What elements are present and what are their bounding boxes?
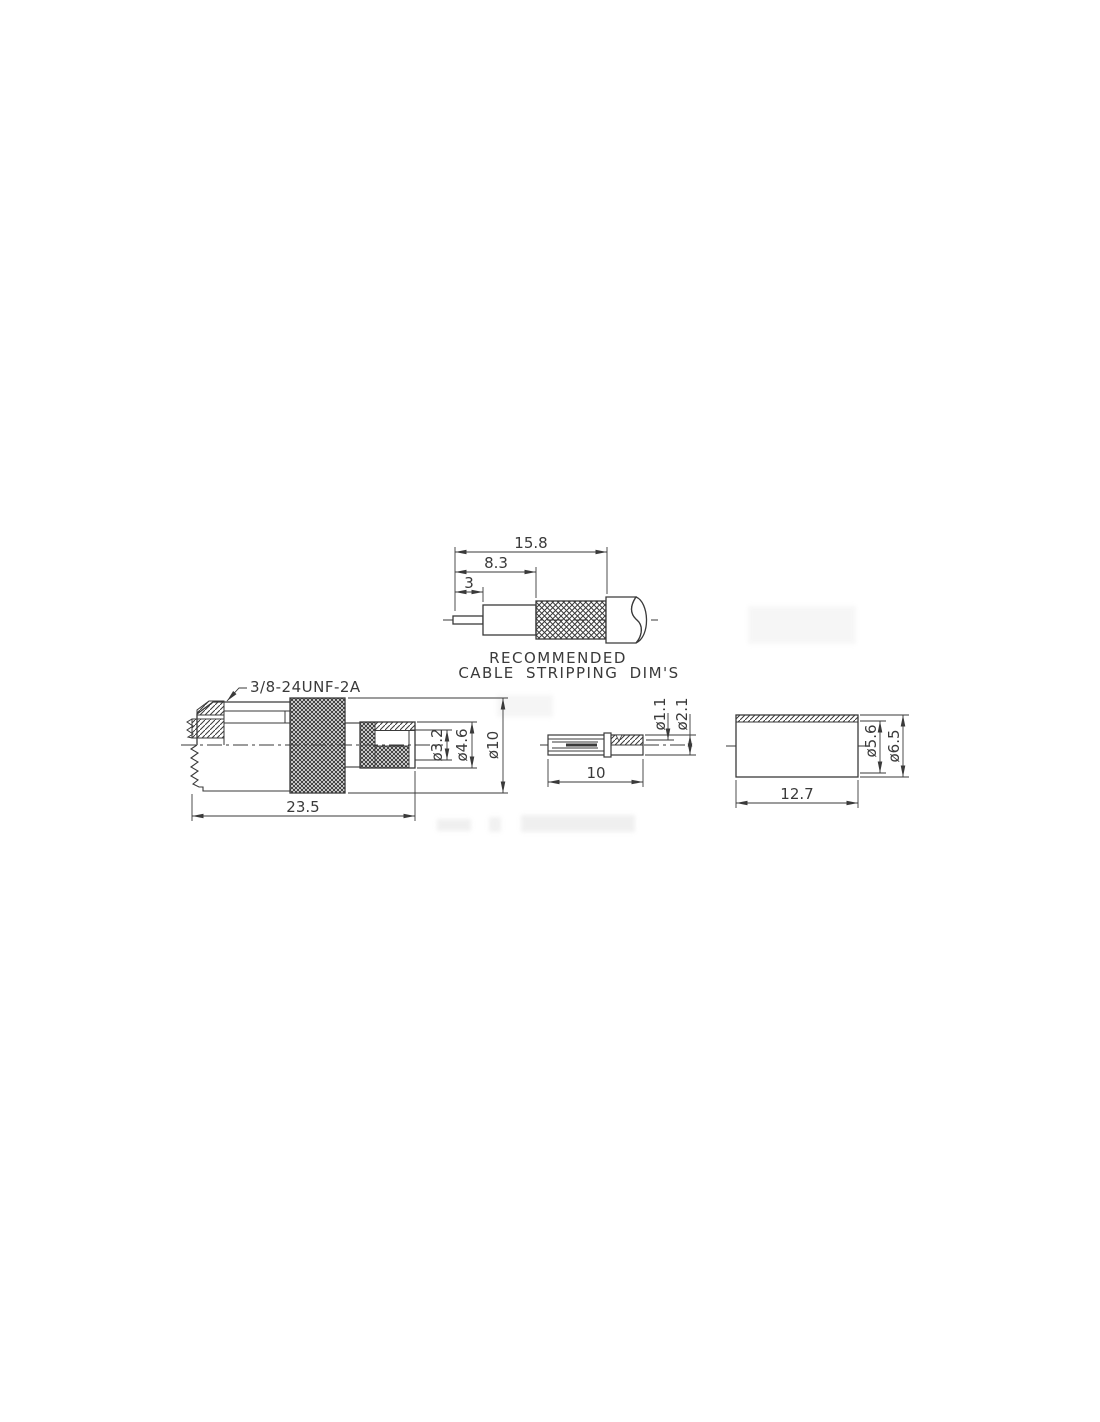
dim-bore-dia: ø3.2 (428, 728, 446, 761)
pin-collar (604, 733, 611, 757)
thread-label: 3/8-24UNF-2A (250, 678, 361, 696)
thread-leader-line (227, 688, 247, 701)
ferrule-wall-hatch (736, 715, 858, 722)
dim-overall-strip: 15.8 (514, 534, 547, 552)
page: 15.8 8.3 3 RECOMMENDED CABLE STRIPPING D… (0, 0, 1100, 1422)
drawing-svg: 15.8 8.3 3 RECOMMENDED CABLE STRIPPING D… (0, 0, 1100, 1422)
dim-body-length: 23.5 (286, 798, 319, 816)
dim-crimp-dia: ø4.6 (453, 728, 471, 761)
caption-cable-stripping: CABLE STRIPPING DIM'S (458, 664, 679, 682)
dim-pin-length: 10 (586, 764, 605, 782)
crimp-ferrule-view: ø5.6 ø6.5 12.7 (726, 715, 909, 808)
body-front-section-hatch-a (197, 701, 224, 715)
body-internal-lines (224, 701, 290, 745)
dim-ferrule-inner-dia: ø5.6 (862, 724, 880, 757)
dim-pin-bore-dia: ø1.1 (651, 697, 669, 730)
cable-stripping-view: 15.8 8.3 3 RECOMMENDED CABLE STRIPPING D… (443, 534, 680, 682)
body-rear-crimp-section (360, 722, 415, 768)
center-pin-view: ø1.1 ø2.1 10 (540, 697, 696, 787)
body-front-section-hatch-b (192, 719, 224, 738)
cable-dielectric (483, 605, 536, 635)
dim-center-strip: 3 (464, 574, 474, 592)
connector-body-view: 3/8-24UNF-2A 23.5 (181, 678, 508, 821)
body-knurl-ring (290, 698, 345, 793)
dim-ferrule-outer-dia: ø6.5 (885, 729, 903, 762)
dim-pin-outer-dia: ø2.1 (673, 697, 691, 730)
body-thread-serration (191, 745, 290, 791)
cable-center-conductor (453, 616, 483, 624)
cable-braid (536, 601, 606, 639)
dim-ferrule-length: 12.7 (780, 785, 813, 803)
dim-braid-strip: 8.3 (484, 554, 508, 572)
dim-body-dia: ø10 (484, 731, 502, 759)
pin-crimp-barrel-hatch (611, 735, 643, 745)
ferrule-outline (736, 715, 858, 777)
